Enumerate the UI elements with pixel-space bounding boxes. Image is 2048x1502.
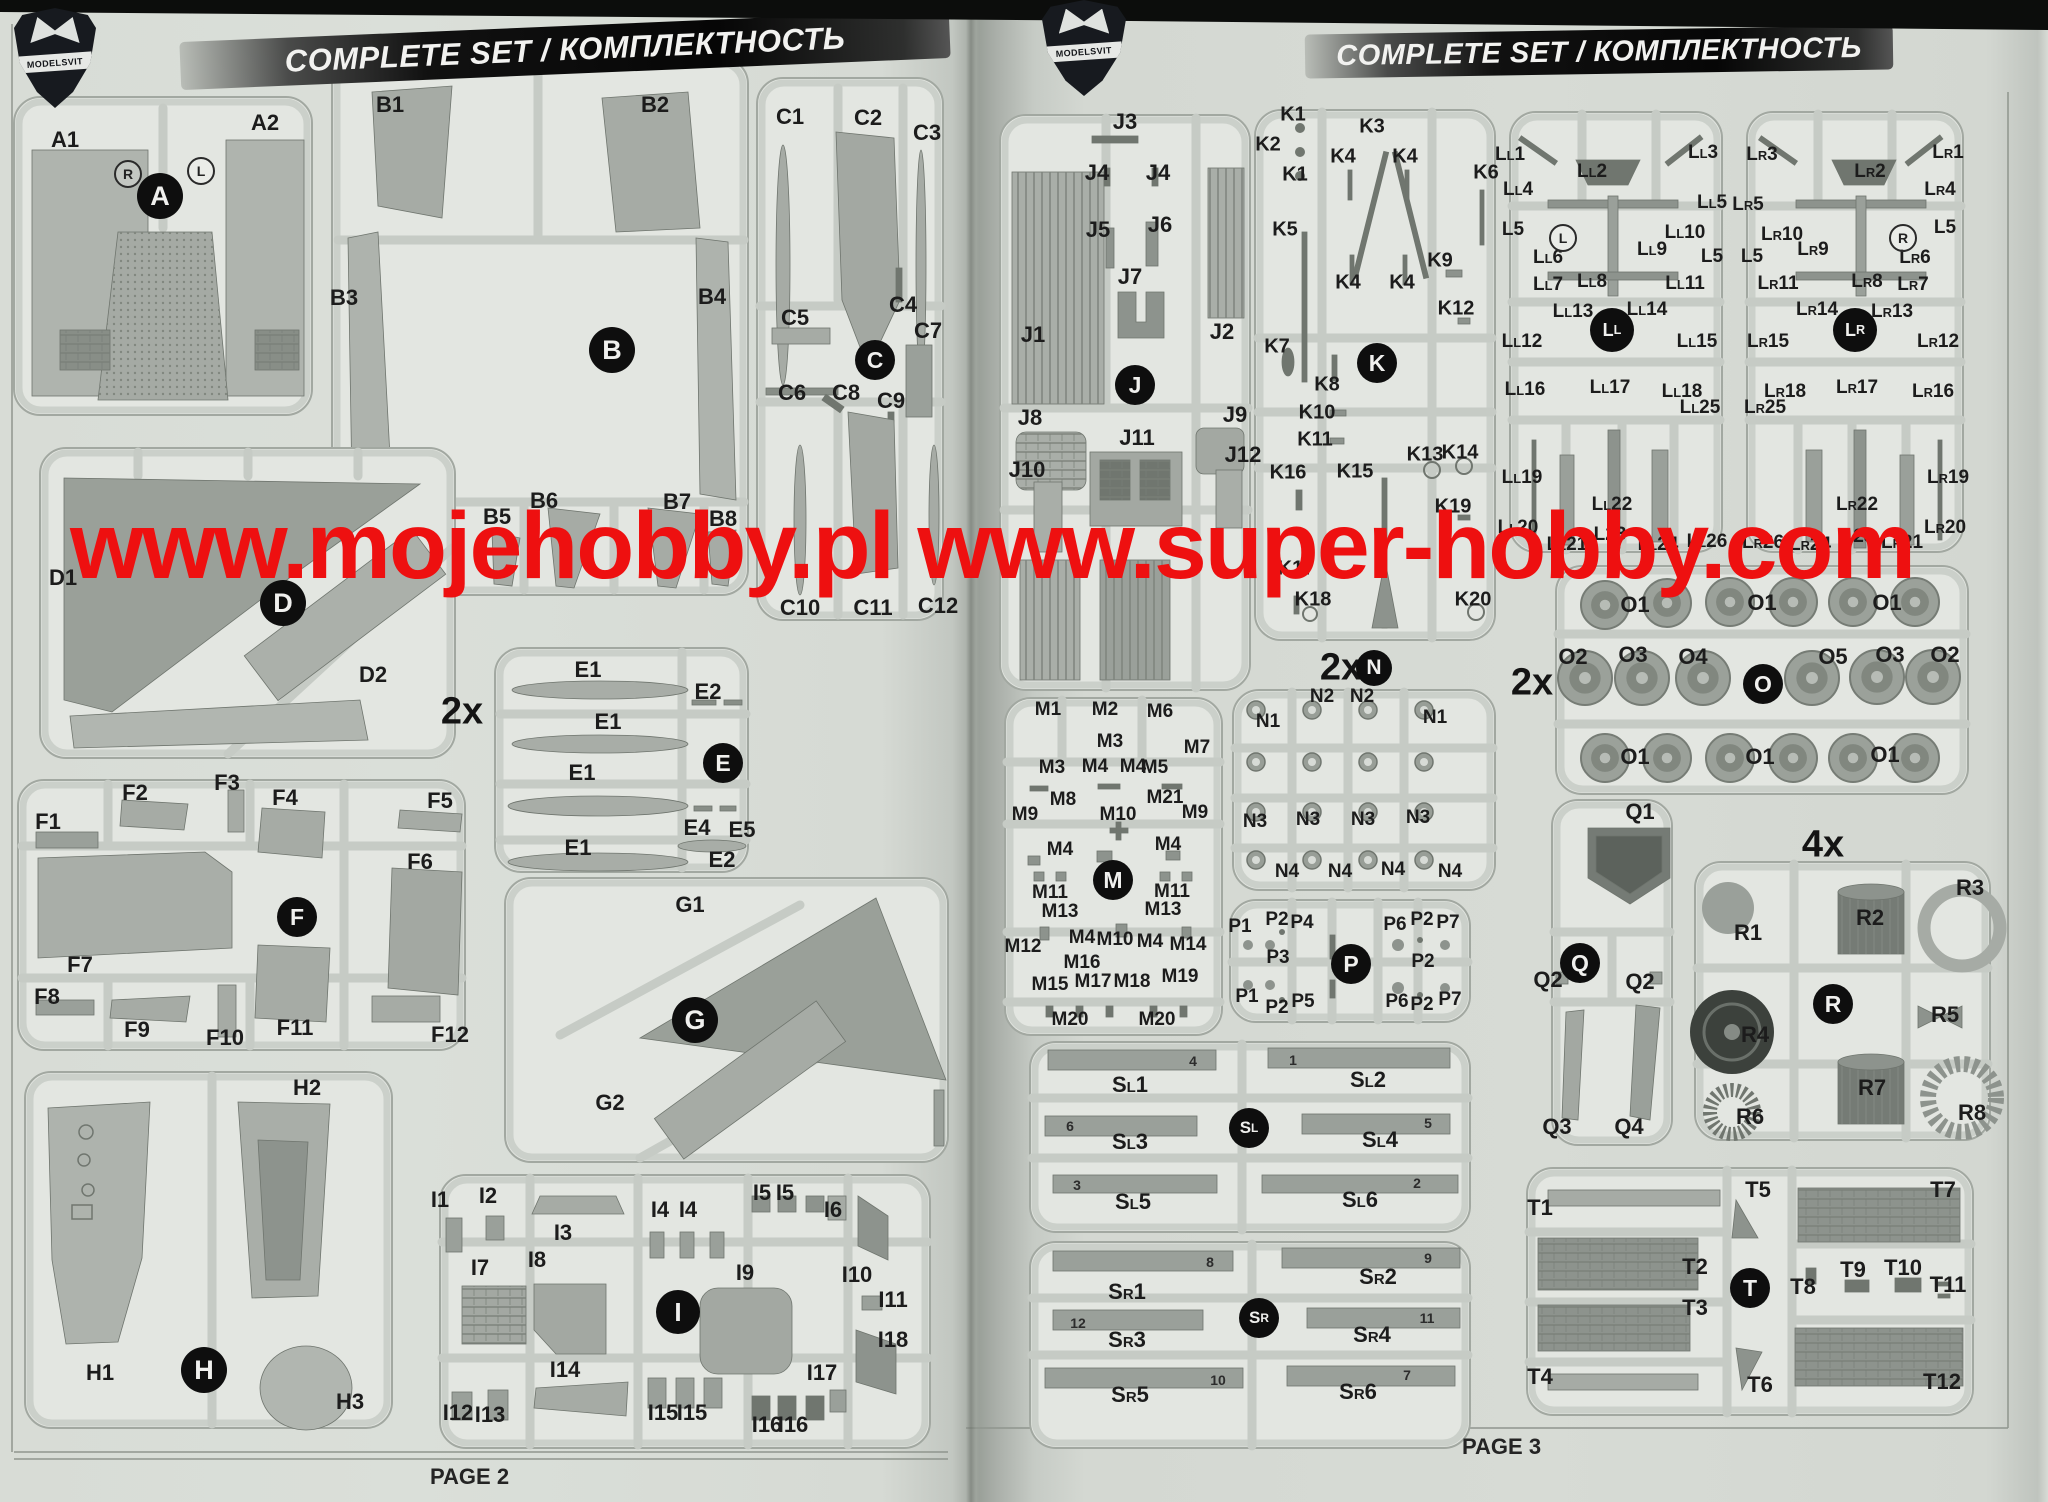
part-label-t8: T8	[1790, 1274, 1816, 1300]
part-label-i18: I18	[878, 1327, 909, 1353]
part-label-lr12: LR12	[1917, 331, 1959, 353]
part-label-lr14: LR14	[1796, 299, 1838, 321]
page-number: PAGE 2	[430, 1464, 509, 1490]
part-label-lr8: LR8	[1851, 271, 1883, 293]
part-label-n3: N3	[1296, 809, 1320, 831]
part-label-g1: G1	[675, 892, 704, 918]
part-label-g2: G2	[595, 1090, 624, 1116]
part-label-f1: F1	[35, 809, 61, 835]
part-label-k10: K10	[1299, 402, 1336, 425]
part-shape	[1910, 597, 1921, 608]
part-shape	[806, 1196, 824, 1212]
part-label-e1: E1	[565, 835, 592, 861]
part-shape	[1662, 598, 1673, 609]
sprue-badge-a: A	[137, 173, 183, 219]
quantity-label: 2x	[441, 691, 483, 734]
part-shape	[1440, 940, 1450, 950]
part-label-m21: M21	[1147, 787, 1184, 809]
part-label-m12: M12	[1005, 936, 1042, 958]
part-label-ll9: LL9	[1637, 239, 1667, 261]
part-label-lr20: LR20	[1924, 517, 1966, 539]
part-label-i5: I5	[753, 1180, 771, 1206]
part-label-o2: O2	[1558, 644, 1587, 670]
logo-wings-icon	[1059, 9, 1109, 34]
part-shape	[694, 806, 712, 811]
part-shape	[1034, 482, 1062, 552]
part-label-m10: M10	[1100, 804, 1137, 826]
part-label-i7: I7	[471, 1255, 489, 1281]
part-shape	[1548, 272, 1678, 280]
orientation-mark-r: R	[1889, 224, 1917, 252]
part-shape	[1417, 937, 1423, 943]
part-label-j11: J11	[1119, 425, 1155, 451]
part-label-p1: P1	[1228, 916, 1251, 938]
part-label-i8: I8	[528, 1247, 546, 1273]
part-label-k4: K4	[1330, 146, 1356, 169]
strip-number: 9	[1424, 1250, 1432, 1266]
part-shape	[700, 1288, 792, 1374]
part-label-ll2: LL2	[1577, 161, 1607, 183]
part-label-ll16: LL16	[1505, 379, 1546, 401]
part-label-a2: A2	[251, 110, 279, 136]
part-shape	[1012, 172, 1104, 404]
part-shape	[720, 806, 736, 811]
part-shape	[1420, 856, 1428, 864]
part-label-i16: I16	[778, 1412, 809, 1438]
part-shape	[1538, 1305, 1690, 1351]
part-shape	[934, 1090, 944, 1146]
part-label-f11: F11	[277, 1015, 314, 1041]
part-label-ll10: LL10	[1665, 222, 1706, 244]
part-label-lr22: LR22	[1836, 494, 1878, 516]
part-label-e5: E5	[729, 817, 756, 843]
part-shape	[710, 1232, 724, 1258]
part-label-f5: F5	[427, 788, 453, 814]
part-label-f8: F8	[34, 984, 60, 1010]
part-shape	[680, 1232, 694, 1258]
part-shape	[228, 790, 244, 832]
part-label-t4: T4	[1527, 1364, 1553, 1390]
part-label-c3: C3	[913, 120, 941, 146]
part-shape	[1252, 758, 1260, 766]
part-label-n1: N1	[1256, 711, 1280, 733]
part-shape	[1560, 455, 1574, 545]
part-label-ll15: LL15	[1677, 331, 1718, 353]
part-shape	[1548, 1190, 1720, 1206]
part-label-k9: K9	[1427, 250, 1453, 273]
part-label-i2: I2	[479, 1183, 497, 1209]
part-label-p7: P7	[1436, 912, 1459, 934]
part-shape	[98, 232, 228, 400]
strip-number: 6	[1066, 1118, 1074, 1134]
part-shape	[830, 1390, 846, 1412]
part-label-sr1: SR1	[1108, 1279, 1146, 1305]
strip-number: 3	[1073, 1177, 1081, 1193]
part-label-m3: M3	[1097, 731, 1123, 753]
part-label-o1: O1	[1745, 744, 1774, 770]
part-shape	[110, 996, 190, 1022]
part-label-ll22: LL22	[1592, 494, 1633, 516]
part-label-i9: I9	[736, 1260, 754, 1286]
part-label-f10: F10	[206, 1025, 244, 1051]
part-label-q2: Q2	[1533, 967, 1562, 993]
part-shape	[1364, 856, 1372, 864]
part-label-sr4: SR4	[1353, 1322, 1391, 1348]
part-shape	[1140, 460, 1170, 500]
part-label-i13: I13	[475, 1402, 506, 1428]
part-label-l5: L5	[1502, 219, 1524, 241]
part-shape	[1548, 1374, 1698, 1390]
part-shape	[255, 330, 299, 370]
part-label-p2: P2	[1265, 909, 1288, 931]
part-shape	[1838, 1054, 1904, 1070]
part-shape	[1848, 597, 1859, 608]
part-label-sl5: SL5	[1115, 1189, 1151, 1215]
sprue-badge-d: D	[260, 580, 306, 626]
part-shape	[1216, 470, 1242, 528]
part-label-lr5: LR5	[1732, 194, 1764, 216]
part-shape	[1608, 196, 1618, 296]
part-label-lr9: LR9	[1797, 239, 1829, 261]
part-label-i4: I4	[679, 1197, 697, 1223]
part-label-t11: T11	[1930, 1272, 1967, 1298]
part-label-b3: B3	[330, 285, 358, 311]
part-shape	[1871, 671, 1883, 683]
part-label-j7: J7	[1118, 264, 1142, 290]
part-label-ll26: LL26	[1687, 531, 1728, 553]
part-label-b2: B2	[641, 92, 669, 118]
part-label-k1: K1	[1282, 164, 1308, 187]
part-label-sr2: SR2	[1359, 1264, 1397, 1290]
sprue-badge-n: N	[1356, 650, 1392, 686]
part-label-j10: J10	[1009, 457, 1046, 483]
part-label-j12: J12	[1225, 442, 1262, 468]
part-label-ll12: LL12	[1502, 331, 1543, 353]
orientation-mark-l: L	[187, 157, 215, 185]
part-shape	[1308, 758, 1316, 766]
part-label-o1: O1	[1747, 590, 1776, 616]
part-shape	[1182, 872, 1192, 881]
part-shape	[512, 735, 688, 753]
part-label-o1: O1	[1620, 744, 1649, 770]
part-label-l5: L5	[1701, 246, 1723, 268]
part-label-k19: K19	[1435, 496, 1472, 519]
part-shape	[1034, 872, 1044, 881]
part-shape	[1100, 560, 1170, 680]
sprue-badge-ll: LL	[1590, 308, 1634, 352]
part-shape	[388, 868, 462, 995]
part-label-k4: K4	[1389, 272, 1415, 295]
part-label-m4: M4	[1082, 756, 1108, 778]
part-label-t2: T2	[1682, 1254, 1708, 1280]
sprue-badge-p: P	[1331, 944, 1371, 984]
part-label-r1: R1	[1734, 920, 1762, 946]
part-label-m20: M20	[1052, 1009, 1089, 1031]
part-label-sl3: SL3	[1112, 1129, 1148, 1155]
page-header-text: COMPLETE SET / КОМПЛЕКТНОСТЬ	[1336, 31, 1862, 72]
part-label-m1: M1	[1035, 699, 1061, 721]
part-label-c1: C1	[776, 104, 804, 130]
part-label-f3: F3	[214, 770, 240, 796]
part-label-t1: T1	[1527, 1195, 1553, 1221]
part-label-r6: R6	[1736, 1104, 1764, 1130]
part-label-p2: P2	[1265, 997, 1288, 1019]
part-label-r3: R3	[1956, 875, 1984, 901]
part-shape	[258, 1140, 308, 1280]
strip-number: 10	[1210, 1372, 1226, 1388]
part-label-p2: P2	[1410, 909, 1433, 931]
part-label-sr6: SR6	[1339, 1379, 1377, 1405]
part-shape	[532, 1196, 624, 1214]
part-label-q4: Q4	[1614, 1114, 1643, 1140]
part-label-j9: J9	[1223, 402, 1247, 428]
part-label-q1: Q1	[1625, 799, 1654, 825]
part-label-j4: J4	[1085, 160, 1109, 186]
part-shape	[1308, 856, 1316, 864]
part-label-j6: J6	[1148, 212, 1172, 238]
part-shape	[1265, 980, 1275, 990]
part-label-b7: B7	[663, 489, 691, 515]
page-gutter	[966, 0, 976, 1502]
part-label-r4: R4	[1741, 1022, 1769, 1048]
part-label-c12: C12	[918, 593, 958, 619]
part-shape	[1348, 170, 1352, 200]
part-label-m4: M4	[1069, 927, 1095, 949]
part-label-k2: K2	[1255, 134, 1281, 157]
part-label-b1: B1	[376, 92, 404, 118]
part-label-k4: K4	[1335, 272, 1361, 295]
part-label-k7: K7	[1264, 336, 1290, 359]
part-shape	[794, 445, 806, 595]
strip-number: 5	[1424, 1115, 1432, 1131]
part-label-k16: K16	[1270, 462, 1307, 485]
part-shape	[1252, 856, 1260, 864]
strip-number: 11	[1420, 1310, 1435, 1326]
part-label-ll13: LL13	[1553, 301, 1594, 323]
part-shape	[462, 1286, 526, 1344]
part-label-m18: M18	[1114, 971, 1151, 993]
part-label-p2: P2	[1411, 951, 1434, 973]
part-label-c8: C8	[832, 380, 860, 406]
part-label-m2: M2	[1092, 699, 1118, 721]
sprue-badge-e: E	[703, 743, 743, 783]
part-label-c10: C10	[780, 595, 820, 621]
part-label-f2: F2	[122, 780, 148, 806]
part-shape	[806, 1396, 824, 1420]
part-label-r2: R2	[1856, 905, 1884, 931]
part-label-j1: J1	[1021, 322, 1045, 348]
part-label-j2: J2	[1210, 319, 1234, 345]
sprue-badge-k: K	[1357, 343, 1397, 383]
part-label-ll21: LL21	[1547, 534, 1588, 556]
part-label-n4: N4	[1381, 859, 1405, 881]
part-label-m15: M15	[1032, 974, 1069, 996]
part-label-k20: K20	[1455, 589, 1492, 612]
brand-name: MODELSVIT	[18, 51, 93, 73]
part-label-t10: T10	[1884, 1255, 1922, 1281]
sprue-badge-sl: SL	[1229, 1108, 1269, 1148]
part-label-lr3: LR3	[1746, 144, 1778, 166]
part-label-m19: M19	[1162, 966, 1199, 988]
part-shape	[1927, 671, 1939, 683]
sprue-badge-m: M	[1093, 860, 1133, 900]
part-label-o1: O1	[1872, 590, 1901, 616]
part-shape	[1600, 600, 1611, 611]
part-label-lr13: LR13	[1871, 301, 1913, 323]
part-shape	[1420, 758, 1428, 766]
part-label-n3: N3	[1406, 807, 1430, 829]
part-shape	[906, 345, 932, 417]
part-label-m5: M5	[1142, 757, 1168, 779]
part-shape	[1806, 450, 1822, 542]
part-label-k18: K18	[1295, 589, 1332, 612]
sprue-badge-g: G	[672, 997, 718, 1043]
sprue-badge-t: T	[1730, 1268, 1770, 1308]
part-label-t12: T12	[1923, 1369, 1961, 1395]
part-shape	[1030, 786, 1048, 791]
sprue-badge-r: R	[1813, 984, 1853, 1024]
part-label-b8: B8	[709, 506, 737, 532]
part-label-h2: H2	[293, 1075, 321, 1101]
part-label-m8: M8	[1050, 789, 1076, 811]
part-shape	[650, 1232, 664, 1258]
logo-wings-icon	[30, 17, 79, 43]
part-label-ll7: LL7	[1533, 274, 1563, 296]
brand-name: MODELSVIT	[1046, 42, 1123, 64]
part-shape	[1848, 753, 1859, 764]
sprue-badge-j: J	[1115, 365, 1155, 405]
strip-number: 8	[1206, 1254, 1214, 1270]
part-shape	[1652, 450, 1668, 542]
part-shape	[260, 1346, 352, 1430]
part-shape	[258, 808, 325, 858]
part-label-i5: I5	[776, 1180, 794, 1206]
part-label-j3: J3	[1113, 109, 1137, 135]
part-label-e1: E1	[595, 709, 622, 735]
part-label-m13: M13	[1145, 899, 1182, 921]
part-label-o5: O5	[1818, 644, 1847, 670]
part-label-c7: C7	[914, 318, 942, 344]
part-shape	[1208, 168, 1244, 318]
part-label-p4: P4	[1290, 912, 1313, 934]
part-label-c2: C2	[854, 105, 882, 131]
part-label-lr17: LR17	[1836, 377, 1878, 399]
part-label-f9: F9	[124, 1017, 150, 1043]
part-label-e1: E1	[569, 760, 596, 786]
part-label-r7: R7	[1858, 1075, 1886, 1101]
part-label-o2: O2	[1930, 642, 1959, 668]
part-shape	[1098, 784, 1120, 789]
orientation-mark-l: L	[1549, 224, 1577, 252]
part-label-ll5: LL5	[1697, 192, 1727, 214]
part-label-d1: D1	[49, 565, 77, 591]
part-shape	[1538, 1238, 1698, 1290]
part-label-sl6: SL6	[1342, 1187, 1378, 1213]
part-shape	[1106, 1006, 1113, 1017]
part-label-h3: H3	[336, 1389, 364, 1415]
part-label-c11: C11	[853, 595, 892, 621]
part-shape	[1405, 170, 1409, 200]
part-shape	[1480, 190, 1484, 245]
part-label-o1: O1	[1870, 742, 1899, 768]
strip-number: 7	[1403, 1367, 1411, 1383]
part-label-ll4: LL4	[1503, 179, 1533, 201]
part-label-a1: A1	[51, 127, 79, 153]
part-shape	[508, 853, 688, 871]
part-label-o3: O3	[1618, 642, 1647, 668]
part-label-f6: F6	[407, 849, 433, 875]
part-shape	[1056, 872, 1066, 881]
part-label-lr7: LR7	[1897, 274, 1929, 296]
part-shape	[60, 330, 110, 370]
part-label-ll14: LL14	[1627, 299, 1668, 321]
part-label-e1: E1	[575, 657, 602, 683]
part-shape	[1788, 597, 1799, 608]
part-shape	[508, 796, 688, 816]
part-shape	[1180, 1006, 1187, 1017]
part-label-lr4: LR4	[1924, 179, 1956, 201]
part-label-m17: M17	[1075, 971, 1112, 993]
part-label-i15: I15	[677, 1400, 708, 1426]
part-label-ll3: LL3	[1688, 142, 1718, 164]
part-label-j8: J8	[1018, 405, 1042, 431]
part-label-p6: P6	[1383, 914, 1406, 936]
part-label-p5: P5	[1291, 991, 1314, 1013]
part-shape	[1724, 1024, 1740, 1040]
part-shape	[1725, 597, 1736, 608]
part-label-k11: K11	[1297, 429, 1333, 452]
page-header: COMPLETE SET / КОМПЛЕКТНОСТЬ	[1305, 25, 1894, 78]
part-shape	[1392, 939, 1404, 951]
part-label-f7: F7	[67, 952, 93, 978]
part-label-ll11: LL11	[1665, 273, 1705, 295]
sprue-badge-i: I	[656, 1290, 700, 1334]
part-label-f4: F4	[272, 785, 298, 811]
strip-number: 4	[1189, 1053, 1197, 1069]
part-label-f12: F12	[431, 1022, 469, 1048]
part-label-lr2: LR2	[1854, 161, 1886, 183]
part-label-ll1: LL1	[1495, 144, 1525, 166]
part-label-lr15: LR15	[1747, 331, 1789, 353]
part-label-p7: P7	[1438, 989, 1461, 1011]
part-label-lr1: LR1	[1932, 142, 1964, 164]
part-label-l5: L5	[1741, 246, 1763, 268]
part-label-b4: B4	[698, 284, 726, 310]
part-label-ll24: LL24	[1638, 534, 1679, 556]
part-shape	[1788, 753, 1799, 764]
sprue-badge-b: B	[589, 327, 635, 373]
part-label-k12: K12	[1438, 298, 1475, 321]
part-label-p6: P6	[1385, 991, 1408, 1013]
part-shape	[776, 145, 790, 385]
orientation-mark-r: R	[114, 160, 142, 188]
strip-number: 2	[1413, 1175, 1421, 1191]
part-label-l5: L5	[1934, 217, 1956, 239]
part-shape	[1806, 672, 1818, 684]
part-label-k17: K17	[1278, 558, 1315, 581]
part-label-m4: M4	[1137, 931, 1163, 953]
part-label-i4: I4	[651, 1197, 669, 1223]
part-shape	[1364, 758, 1372, 766]
part-label-lr11: LR11	[1757, 273, 1798, 295]
part-label-m10: M10	[1097, 929, 1134, 951]
part-label-i17: I17	[807, 1360, 838, 1386]
part-label-i10: I10	[842, 1262, 873, 1288]
part-shape	[512, 681, 688, 699]
part-label-c4: C4	[889, 292, 917, 318]
part-label-r8: R8	[1958, 1100, 1986, 1126]
part-label-m9: M9	[1182, 802, 1208, 824]
